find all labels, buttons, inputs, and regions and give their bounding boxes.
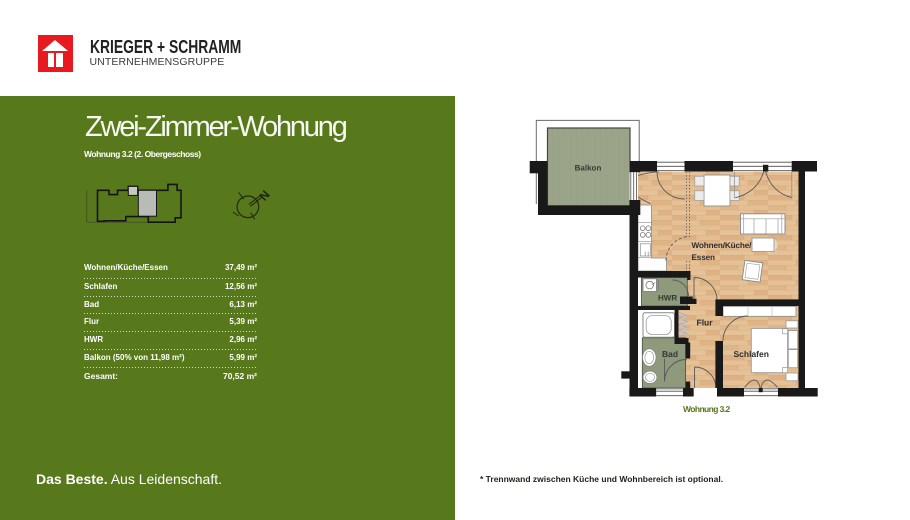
svg-text:HWR: HWR: [658, 293, 677, 302]
svg-text:Schlafen: Schlafen: [734, 349, 769, 359]
svg-text:Essen: Essen: [692, 253, 716, 262]
svg-text:N: N: [256, 188, 272, 204]
svg-text:Bad: Bad: [662, 349, 678, 359]
svg-text:Balkon: Balkon: [575, 164, 602, 173]
svg-text:Wohnen/Küche/: Wohnen/Küche/: [692, 241, 753, 250]
svg-text:Flur: Flur: [697, 318, 714, 328]
svg-text:Wohnung 3.2: Wohnung 3.2: [683, 404, 730, 414]
